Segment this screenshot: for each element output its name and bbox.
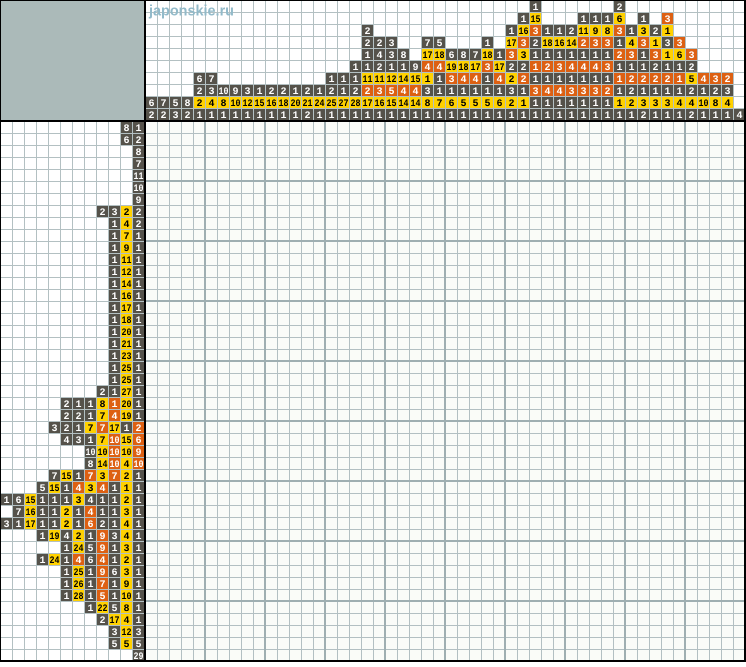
svg-text:1: 1: [544, 99, 550, 110]
svg-text:1: 1: [556, 51, 562, 62]
svg-text:4: 4: [75, 484, 81, 495]
svg-text:1: 1: [448, 87, 454, 98]
svg-text:5: 5: [111, 640, 117, 651]
svg-text:3: 3: [604, 39, 610, 50]
svg-text:9: 9: [99, 568, 105, 579]
svg-text:2: 2: [520, 63, 526, 74]
svg-text:3: 3: [87, 484, 93, 495]
svg-text:2: 2: [652, 75, 658, 86]
svg-text:4: 4: [424, 63, 430, 74]
svg-text:4: 4: [700, 75, 706, 86]
svg-text:3: 3: [123, 568, 129, 579]
svg-text:1: 1: [676, 63, 682, 74]
svg-text:14: 14: [98, 460, 108, 471]
svg-text:21: 21: [303, 99, 313, 110]
svg-text:4: 4: [63, 436, 69, 447]
svg-text:8: 8: [184, 99, 190, 110]
svg-text:1: 1: [592, 51, 598, 62]
svg-text:19: 19: [447, 63, 457, 74]
svg-text:10: 10: [110, 460, 120, 471]
svg-text:1: 1: [87, 592, 93, 603]
svg-text:2: 2: [580, 39, 586, 50]
svg-text:4: 4: [75, 556, 81, 567]
svg-text:2: 2: [520, 75, 526, 86]
svg-text:2: 2: [99, 388, 105, 399]
svg-text:2: 2: [652, 27, 658, 38]
svg-text:1: 1: [87, 532, 93, 543]
svg-text:6: 6: [87, 556, 93, 567]
svg-text:2: 2: [328, 87, 334, 98]
svg-text:1: 1: [111, 316, 117, 327]
svg-text:14: 14: [411, 99, 421, 110]
svg-text:2: 2: [724, 75, 730, 86]
svg-text:3: 3: [580, 87, 586, 98]
svg-text:2: 2: [99, 208, 105, 219]
svg-text:15: 15: [255, 99, 265, 110]
svg-text:1: 1: [135, 592, 141, 603]
svg-text:20: 20: [291, 99, 301, 110]
svg-text:1: 1: [568, 51, 574, 62]
svg-text:1: 1: [135, 244, 141, 255]
svg-text:1: 1: [652, 39, 658, 50]
svg-text:11: 11: [375, 75, 385, 86]
svg-text:1: 1: [111, 556, 117, 567]
svg-text:1: 1: [75, 508, 81, 519]
svg-text:1: 1: [39, 556, 45, 567]
svg-text:6: 6: [123, 136, 129, 147]
svg-text:11: 11: [363, 75, 373, 86]
svg-text:3: 3: [99, 472, 105, 483]
svg-text:1: 1: [436, 75, 442, 86]
svg-text:1: 1: [640, 51, 646, 62]
svg-text:4: 4: [436, 63, 442, 74]
svg-text:1: 1: [111, 304, 117, 315]
svg-text:19: 19: [122, 412, 132, 423]
svg-text:17: 17: [122, 304, 132, 315]
svg-text:17: 17: [110, 616, 120, 627]
svg-text:1: 1: [544, 75, 550, 86]
svg-text:2: 2: [63, 520, 69, 531]
svg-text:1: 1: [472, 87, 478, 98]
svg-text:4: 4: [99, 556, 105, 567]
svg-text:1: 1: [135, 364, 141, 375]
svg-text:8: 8: [99, 400, 105, 411]
svg-text:1: 1: [628, 27, 634, 38]
svg-text:japonskie.ru: japonskie.ru: [148, 3, 234, 20]
svg-text:1: 1: [616, 99, 622, 110]
svg-text:7: 7: [436, 99, 442, 110]
svg-text:4: 4: [568, 63, 574, 74]
svg-text:4: 4: [472, 75, 478, 86]
svg-text:12: 12: [122, 628, 132, 639]
svg-text:8: 8: [712, 99, 718, 110]
svg-text:10: 10: [122, 448, 132, 459]
svg-text:5: 5: [172, 99, 178, 110]
svg-text:2: 2: [640, 75, 646, 86]
svg-text:1: 1: [75, 400, 81, 411]
svg-text:17: 17: [363, 99, 373, 110]
svg-text:10: 10: [110, 448, 120, 459]
svg-text:1: 1: [135, 340, 141, 351]
svg-text:1: 1: [63, 580, 69, 591]
svg-text:4: 4: [99, 484, 105, 495]
svg-text:24: 24: [315, 99, 325, 110]
svg-text:15: 15: [26, 496, 36, 507]
svg-text:1: 1: [135, 484, 141, 495]
svg-text:1: 1: [364, 51, 370, 62]
svg-text:1: 1: [63, 544, 69, 555]
svg-text:7: 7: [87, 472, 93, 483]
svg-text:2: 2: [135, 424, 141, 435]
svg-text:16: 16: [375, 99, 385, 110]
svg-text:9: 9: [135, 448, 141, 459]
svg-text:7: 7: [99, 424, 105, 435]
svg-text:1: 1: [135, 124, 141, 135]
svg-text:19: 19: [50, 532, 60, 543]
svg-text:17: 17: [423, 51, 433, 62]
svg-text:1: 1: [87, 604, 93, 615]
svg-text:20: 20: [122, 328, 132, 339]
svg-text:3: 3: [111, 628, 117, 639]
svg-text:6: 6: [196, 75, 202, 86]
svg-text:1: 1: [135, 544, 141, 555]
svg-text:25: 25: [122, 364, 132, 375]
svg-text:1: 1: [556, 27, 562, 38]
svg-text:1: 1: [676, 75, 682, 86]
svg-text:1: 1: [135, 412, 141, 423]
svg-text:7: 7: [99, 580, 105, 591]
svg-text:3: 3: [664, 15, 670, 26]
svg-text:3: 3: [244, 87, 250, 98]
svg-text:1: 1: [75, 424, 81, 435]
svg-text:4: 4: [111, 412, 117, 423]
svg-text:3: 3: [508, 51, 514, 62]
svg-text:2: 2: [63, 412, 69, 423]
svg-text:27: 27: [122, 388, 132, 399]
svg-text:1: 1: [135, 352, 141, 363]
svg-text:8: 8: [123, 124, 129, 135]
svg-text:1: 1: [39, 520, 45, 531]
svg-text:4: 4: [87, 496, 93, 507]
svg-text:3: 3: [424, 87, 430, 98]
svg-text:8: 8: [220, 99, 226, 110]
svg-text:2: 2: [63, 424, 69, 435]
svg-text:14: 14: [399, 75, 409, 86]
svg-text:2: 2: [63, 400, 69, 411]
svg-text:1: 1: [568, 99, 574, 110]
svg-text:4: 4: [63, 532, 69, 543]
svg-text:1: 1: [111, 400, 117, 411]
svg-text:1: 1: [111, 352, 117, 363]
svg-text:16: 16: [519, 27, 529, 38]
svg-text:2: 2: [628, 99, 634, 110]
svg-text:8: 8: [460, 51, 466, 62]
svg-text:5: 5: [39, 484, 45, 495]
svg-text:3: 3: [75, 436, 81, 447]
svg-text:1: 1: [39, 532, 45, 543]
svg-text:1: 1: [580, 51, 586, 62]
svg-text:16: 16: [122, 292, 132, 303]
svg-text:7: 7: [424, 39, 430, 50]
svg-text:9: 9: [135, 196, 141, 207]
svg-text:9: 9: [123, 580, 129, 591]
svg-text:1: 1: [664, 27, 670, 38]
svg-text:1: 1: [388, 63, 394, 74]
svg-text:1: 1: [520, 87, 526, 98]
svg-text:7: 7: [15, 508, 21, 519]
svg-text:2: 2: [63, 508, 69, 519]
svg-text:1: 1: [51, 508, 57, 519]
svg-text:1: 1: [352, 63, 358, 74]
svg-text:1: 1: [436, 87, 442, 98]
svg-text:1: 1: [340, 87, 346, 98]
svg-text:1: 1: [604, 75, 610, 86]
svg-text:2: 2: [616, 3, 622, 14]
svg-text:8: 8: [87, 460, 93, 471]
svg-text:16: 16: [26, 508, 36, 519]
svg-text:1: 1: [63, 496, 69, 507]
svg-text:5: 5: [688, 75, 694, 86]
svg-text:1: 1: [135, 328, 141, 339]
svg-text:2: 2: [123, 556, 129, 567]
svg-text:1: 1: [63, 484, 69, 495]
svg-text:1: 1: [640, 15, 646, 26]
svg-text:4: 4: [123, 532, 129, 543]
svg-text:1: 1: [580, 75, 586, 86]
svg-text:2: 2: [532, 39, 538, 50]
svg-text:23: 23: [122, 352, 132, 363]
svg-text:2: 2: [688, 87, 694, 98]
svg-text:1: 1: [135, 568, 141, 579]
svg-text:7: 7: [472, 51, 478, 62]
svg-text:1: 1: [135, 556, 141, 567]
svg-text:2: 2: [652, 63, 658, 74]
svg-text:12: 12: [243, 99, 253, 110]
svg-text:4: 4: [628, 39, 634, 50]
svg-text:10: 10: [219, 87, 229, 98]
svg-text:16: 16: [267, 99, 277, 110]
svg-text:2: 2: [508, 63, 514, 74]
svg-text:1: 1: [292, 87, 298, 98]
svg-text:3: 3: [135, 628, 141, 639]
svg-text:18: 18: [543, 39, 553, 50]
svg-text:1: 1: [316, 87, 322, 98]
svg-text:17: 17: [507, 39, 517, 50]
svg-text:3: 3: [111, 532, 117, 543]
svg-text:1: 1: [544, 51, 550, 62]
svg-text:18: 18: [122, 316, 132, 327]
svg-text:27: 27: [339, 99, 349, 110]
svg-text:1: 1: [135, 316, 141, 327]
svg-text:14: 14: [567, 39, 577, 50]
svg-text:10: 10: [134, 184, 144, 195]
svg-text:12: 12: [387, 75, 397, 86]
svg-text:1: 1: [111, 268, 117, 279]
svg-text:1: 1: [135, 400, 141, 411]
svg-text:3: 3: [676, 39, 682, 50]
svg-text:3: 3: [388, 39, 394, 50]
svg-text:6: 6: [448, 51, 454, 62]
svg-text:1: 1: [256, 87, 262, 98]
svg-text:1: 1: [111, 592, 117, 603]
svg-text:3: 3: [664, 99, 670, 110]
svg-text:28: 28: [74, 592, 84, 603]
svg-text:2: 2: [544, 63, 550, 74]
svg-text:2: 2: [135, 136, 141, 147]
svg-text:2: 2: [268, 87, 274, 98]
svg-text:5: 5: [388, 87, 394, 98]
svg-text:1: 1: [460, 87, 466, 98]
svg-text:3: 3: [75, 496, 81, 507]
svg-text:10: 10: [699, 99, 709, 110]
svg-text:4: 4: [208, 99, 214, 110]
svg-text:4: 4: [580, 63, 586, 74]
svg-text:5: 5: [472, 99, 478, 110]
svg-text:1: 1: [111, 244, 117, 255]
svg-text:1: 1: [111, 484, 117, 495]
svg-text:15: 15: [50, 484, 60, 495]
svg-text:4: 4: [496, 75, 502, 86]
svg-text:3: 3: [640, 99, 646, 110]
svg-text:1: 1: [532, 99, 538, 110]
svg-text:3: 3: [388, 51, 394, 62]
svg-text:15: 15: [62, 472, 72, 483]
svg-text:1: 1: [111, 508, 117, 519]
svg-text:1: 1: [87, 568, 93, 579]
svg-text:7: 7: [87, 424, 93, 435]
svg-text:1: 1: [135, 304, 141, 315]
svg-text:1: 1: [616, 75, 622, 86]
svg-text:1: 1: [604, 15, 610, 26]
svg-text:1: 1: [111, 544, 117, 555]
svg-text:1: 1: [616, 63, 622, 74]
svg-text:11: 11: [122, 256, 132, 267]
svg-text:1: 1: [532, 63, 538, 74]
svg-text:1: 1: [111, 364, 117, 375]
svg-text:10: 10: [134, 460, 144, 471]
svg-text:25: 25: [327, 99, 337, 110]
svg-text:3: 3: [448, 75, 454, 86]
svg-text:1: 1: [39, 508, 45, 519]
svg-text:2: 2: [616, 51, 622, 62]
svg-text:1: 1: [63, 592, 69, 603]
svg-text:9: 9: [412, 63, 418, 74]
svg-text:1: 1: [87, 400, 93, 411]
svg-text:2: 2: [376, 39, 382, 50]
svg-text:3: 3: [712, 75, 718, 86]
svg-text:3: 3: [724, 87, 730, 98]
svg-text:18: 18: [279, 99, 289, 110]
svg-text:9: 9: [99, 532, 105, 543]
svg-text:1: 1: [664, 63, 670, 74]
svg-text:25: 25: [122, 376, 132, 387]
svg-text:3: 3: [484, 63, 490, 74]
svg-text:1: 1: [604, 51, 610, 62]
svg-text:6: 6: [676, 51, 682, 62]
svg-text:1: 1: [484, 87, 490, 98]
svg-text:3: 3: [688, 51, 694, 62]
svg-text:1: 1: [135, 532, 141, 543]
svg-text:1: 1: [111, 232, 117, 243]
svg-text:3: 3: [376, 87, 382, 98]
svg-text:2: 2: [508, 99, 514, 110]
svg-text:2: 2: [135, 208, 141, 219]
svg-text:18: 18: [435, 51, 445, 62]
svg-text:17: 17: [471, 63, 481, 74]
svg-text:6: 6: [87, 520, 93, 531]
svg-text:1: 1: [135, 388, 141, 399]
svg-text:6: 6: [496, 99, 502, 110]
svg-text:1: 1: [364, 63, 370, 74]
svg-text:4: 4: [123, 220, 129, 231]
svg-text:3: 3: [520, 39, 526, 50]
svg-text:1: 1: [664, 87, 670, 98]
svg-text:3: 3: [604, 63, 610, 74]
svg-text:15: 15: [411, 75, 421, 86]
svg-text:1: 1: [111, 256, 117, 267]
svg-text:2: 2: [304, 87, 310, 98]
svg-text:2: 2: [664, 75, 670, 86]
svg-text:1: 1: [135, 616, 141, 627]
svg-text:1: 1: [111, 496, 117, 507]
svg-text:18: 18: [483, 51, 493, 62]
svg-text:3: 3: [640, 27, 646, 38]
svg-text:5: 5: [436, 39, 442, 50]
svg-text:2: 2: [364, 39, 370, 50]
svg-text:8: 8: [123, 604, 129, 615]
svg-text:1: 1: [87, 436, 93, 447]
svg-text:2: 2: [604, 87, 610, 98]
svg-text:1: 1: [111, 328, 117, 339]
svg-text:2: 2: [99, 520, 105, 531]
svg-text:3: 3: [628, 51, 634, 62]
svg-text:20: 20: [122, 400, 132, 411]
svg-text:10: 10: [98, 448, 108, 459]
svg-text:1: 1: [135, 520, 141, 531]
svg-text:4: 4: [123, 616, 129, 627]
svg-text:3: 3: [652, 51, 658, 62]
svg-text:3: 3: [51, 424, 57, 435]
svg-text:1: 1: [75, 472, 81, 483]
svg-text:1: 1: [496, 87, 502, 98]
svg-text:1: 1: [580, 99, 586, 110]
svg-text:10: 10: [110, 436, 120, 447]
svg-text:1: 1: [652, 87, 658, 98]
svg-text:1: 1: [532, 51, 538, 62]
svg-text:7: 7: [51, 472, 57, 483]
svg-text:2: 2: [196, 87, 202, 98]
svg-text:6: 6: [135, 436, 141, 447]
svg-text:1: 1: [135, 508, 141, 519]
svg-text:3: 3: [208, 87, 214, 98]
svg-text:6: 6: [616, 15, 622, 26]
svg-text:1: 1: [135, 232, 141, 243]
svg-text:1: 1: [616, 39, 622, 50]
svg-text:1: 1: [616, 87, 622, 98]
svg-text:12: 12: [122, 268, 132, 279]
svg-text:1: 1: [568, 75, 574, 86]
svg-text:28: 28: [351, 99, 361, 110]
svg-text:3: 3: [616, 27, 622, 38]
svg-text:18: 18: [459, 63, 469, 74]
svg-text:1: 1: [700, 87, 706, 98]
svg-text:1: 1: [111, 388, 117, 399]
svg-text:1: 1: [111, 340, 117, 351]
svg-text:8: 8: [424, 99, 430, 110]
svg-text:1: 1: [123, 484, 129, 495]
svg-text:8: 8: [604, 27, 610, 38]
svg-text:1: 1: [87, 580, 93, 591]
